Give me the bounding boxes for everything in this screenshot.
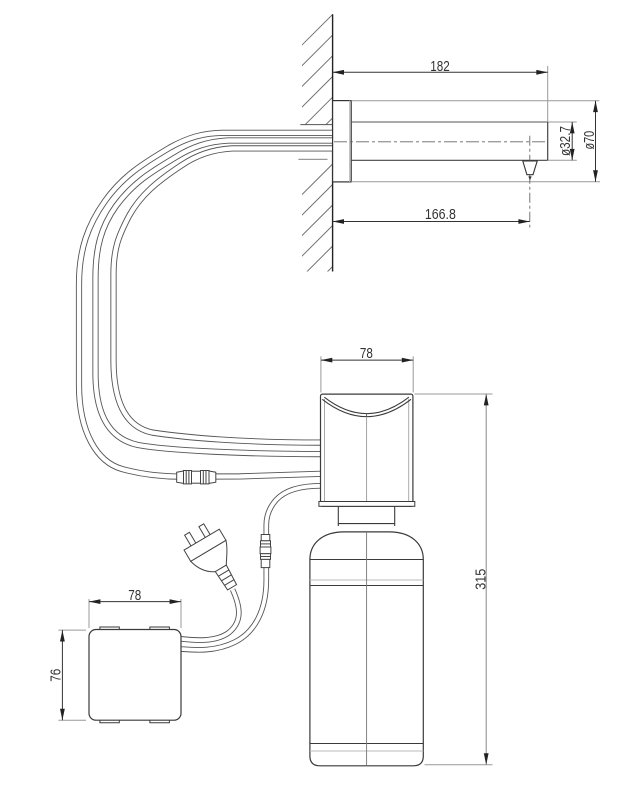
svg-text:76: 76 — [49, 669, 65, 682]
svg-text:315: 315 — [473, 569, 489, 590]
svg-text:166.8: 166.8 — [425, 207, 456, 223]
svg-text:182: 182 — [430, 59, 450, 75]
svg-text:78: 78 — [128, 588, 141, 604]
svg-text:78: 78 — [360, 346, 373, 362]
svg-text:ø32.7: ø32.7 — [558, 126, 574, 156]
svg-text:ø70: ø70 — [582, 131, 598, 150]
